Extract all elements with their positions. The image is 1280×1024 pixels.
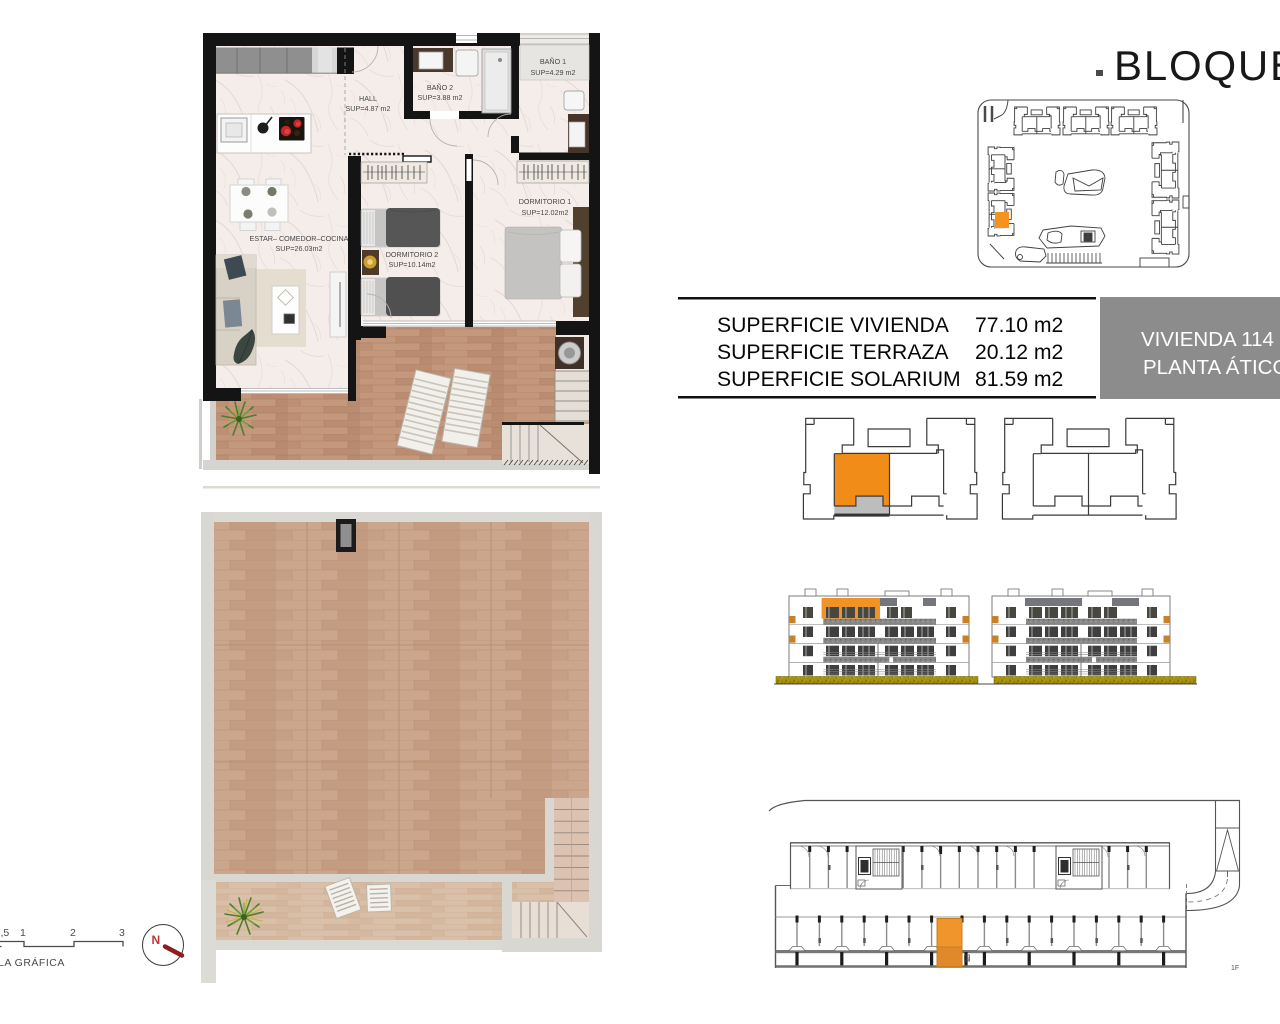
svg-text:PLANTA ÁTICO: PLANTA ÁTICO xyxy=(1143,356,1280,379)
svg-text:3: 3 xyxy=(119,927,125,939)
svg-text:,5: ,5 xyxy=(1,927,10,939)
svg-text:SUP=12.02m2: SUP=12.02m2 xyxy=(522,208,569,217)
svg-text:SUP=4.29 m2: SUP=4.29 m2 xyxy=(531,68,576,77)
svg-text:B: B xyxy=(966,957,970,963)
svg-text:BLOQUE: BLOQUE xyxy=(1114,42,1280,89)
svg-text:VIVIENDA 114: VIVIENDA 114 xyxy=(1141,328,1274,351)
svg-text:77.10 m2: 77.10 m2 xyxy=(975,314,1063,337)
svg-text:N: N xyxy=(152,933,161,947)
svg-text:81.59 m2: 81.59 m2 xyxy=(975,368,1063,391)
svg-text:BAÑO 2: BAÑO 2 xyxy=(427,83,453,92)
svg-text:SUP=10.14m2: SUP=10.14m2 xyxy=(389,260,436,269)
svg-text:SUP=26.03m2: SUP=26.03m2 xyxy=(276,244,323,253)
svg-text:20.12 m2: 20.12 m2 xyxy=(975,341,1063,364)
svg-text:ESTAR– COMEDOR–COCINA: ESTAR– COMEDOR–COCINA xyxy=(250,234,349,243)
svg-text:HALL: HALL xyxy=(359,94,377,103)
svg-text:DORMITORIO 1: DORMITORIO 1 xyxy=(519,197,572,206)
svg-text:SUP=4.87 m2: SUP=4.87 m2 xyxy=(346,104,391,113)
svg-text:SUPERFICIE TERRAZA: SUPERFICIE TERRAZA xyxy=(717,341,949,364)
svg-text:SUP=3.88 m2: SUP=3.88 m2 xyxy=(418,93,463,102)
svg-text:LA GRÁFICA: LA GRÁFICA xyxy=(0,956,65,969)
svg-text:BAÑO 1: BAÑO 1 xyxy=(540,57,566,66)
svg-text:1F: 1F xyxy=(1231,965,1239,972)
svg-text:1: 1 xyxy=(20,927,26,939)
svg-text:SUPERFICIE VIVIENDA: SUPERFICIE VIVIENDA xyxy=(717,314,950,337)
svg-text:DORMITORIO 2: DORMITORIO 2 xyxy=(386,250,439,259)
svg-text:SUPERFICIE SOLARIUM: SUPERFICIE SOLARIUM xyxy=(717,368,961,391)
svg-text:2: 2 xyxy=(70,927,76,939)
